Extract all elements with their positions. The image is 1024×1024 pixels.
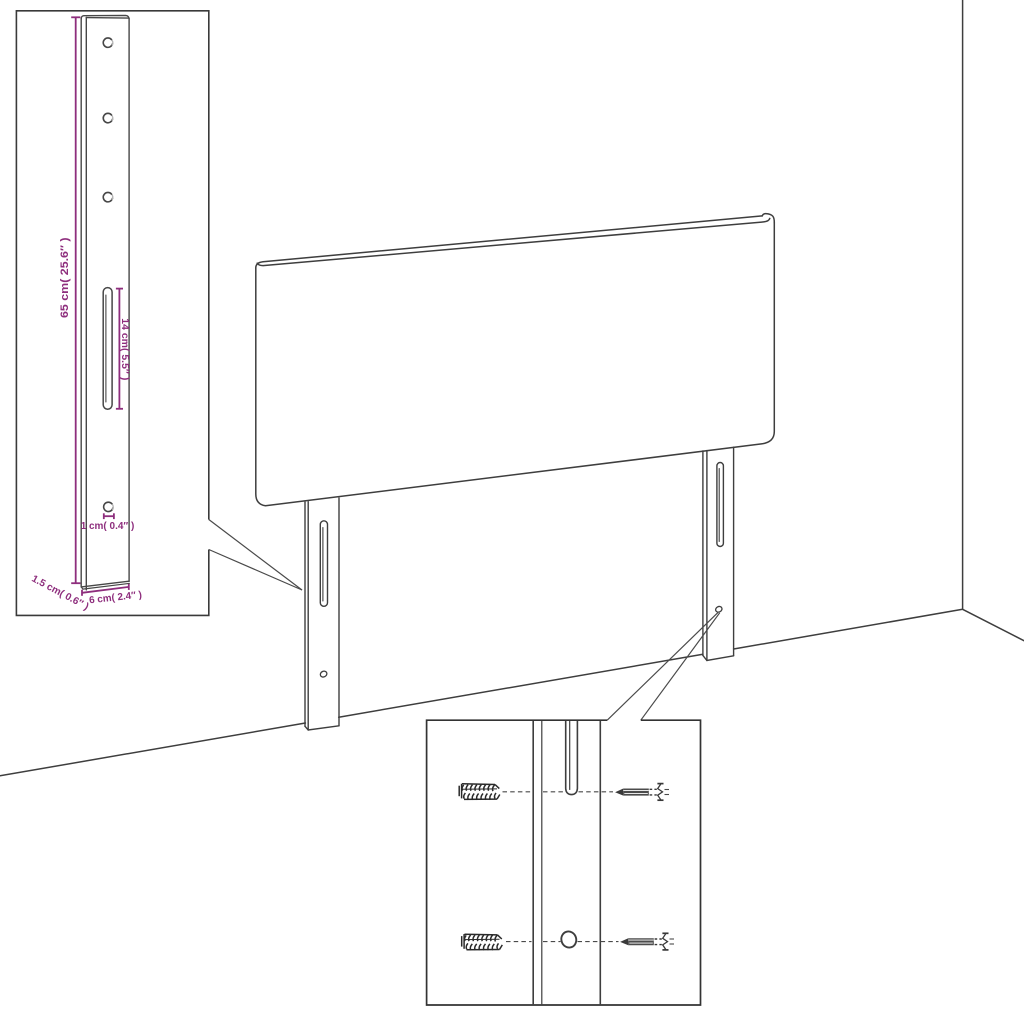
svg-text:65 cm( 25.6″ ): 65 cm( 25.6″ ): [59, 238, 71, 319]
svg-text:1 cm( 0.4″ ): 1 cm( 0.4″ ): [81, 521, 135, 532]
svg-text:14 cm( 5.5″ ): 14 cm( 5.5″ ): [119, 318, 130, 380]
